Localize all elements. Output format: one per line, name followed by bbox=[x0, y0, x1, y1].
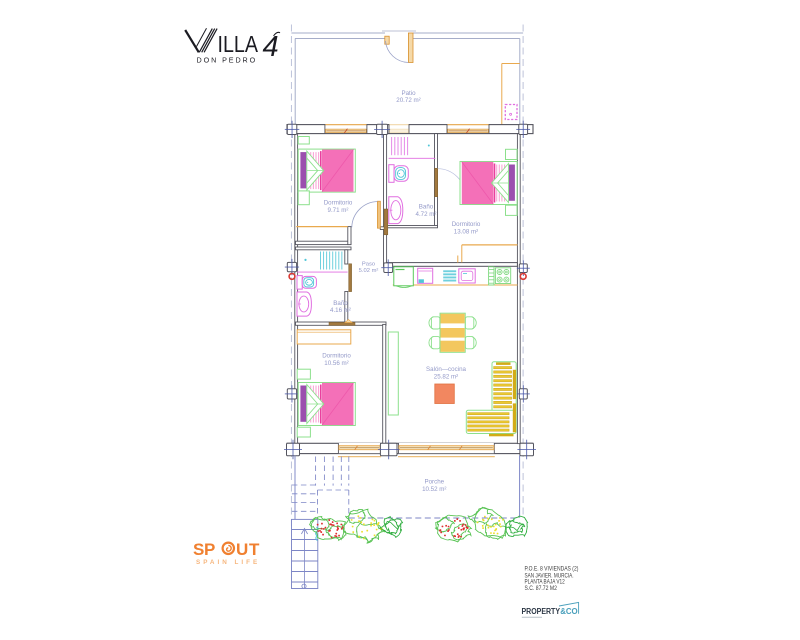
svg-text:Paso: Paso bbox=[362, 262, 375, 268]
svg-text:P: P bbox=[204, 540, 215, 559]
svg-text:ILLA: ILLA bbox=[218, 31, 259, 57]
svg-text:PROPERTY: PROPERTY bbox=[522, 606, 561, 616]
svg-text:10.56 m²: 10.56 m² bbox=[324, 360, 348, 367]
svg-text:5.02 m²: 5.02 m² bbox=[359, 268, 379, 274]
svg-text:Porche: Porche bbox=[424, 479, 444, 486]
svg-text:25.82 m²: 25.82 m² bbox=[434, 374, 458, 381]
svg-text:9.71 m²: 9.71 m² bbox=[328, 207, 349, 214]
svg-text:SPAIN LIFE: SPAIN LIFE bbox=[196, 559, 260, 566]
svg-text:S: S bbox=[193, 540, 204, 559]
svg-text:Salón—cocina: Salón—cocina bbox=[426, 366, 466, 373]
svg-text:4: 4 bbox=[263, 31, 279, 63]
svg-text:S.C. 87.72 M2: S.C. 87.72 M2 bbox=[525, 585, 558, 592]
svg-text:U: U bbox=[236, 540, 248, 559]
svg-text:Baño: Baño bbox=[333, 300, 348, 307]
svg-text:Dormitorio: Dormitorio bbox=[324, 200, 353, 207]
svg-text:Patio: Patio bbox=[401, 90, 416, 97]
svg-text:10.52 m²: 10.52 m² bbox=[422, 486, 446, 493]
svg-text:4.16 m²: 4.16 m² bbox=[330, 307, 351, 314]
svg-text:Dormitorio: Dormitorio bbox=[322, 353, 351, 360]
svg-text:13.08 m²: 13.08 m² bbox=[454, 229, 478, 236]
svg-text:T: T bbox=[249, 540, 260, 559]
svg-text:&CO: &CO bbox=[560, 606, 578, 616]
svg-text:20.72 m²: 20.72 m² bbox=[396, 97, 420, 104]
svg-text:Dormitorio: Dormitorio bbox=[452, 221, 481, 228]
svg-text:Baño: Baño bbox=[419, 204, 434, 211]
svg-text:4.72 m²: 4.72 m² bbox=[416, 211, 437, 218]
svg-text:DON PEDRO: DON PEDRO bbox=[197, 56, 258, 65]
